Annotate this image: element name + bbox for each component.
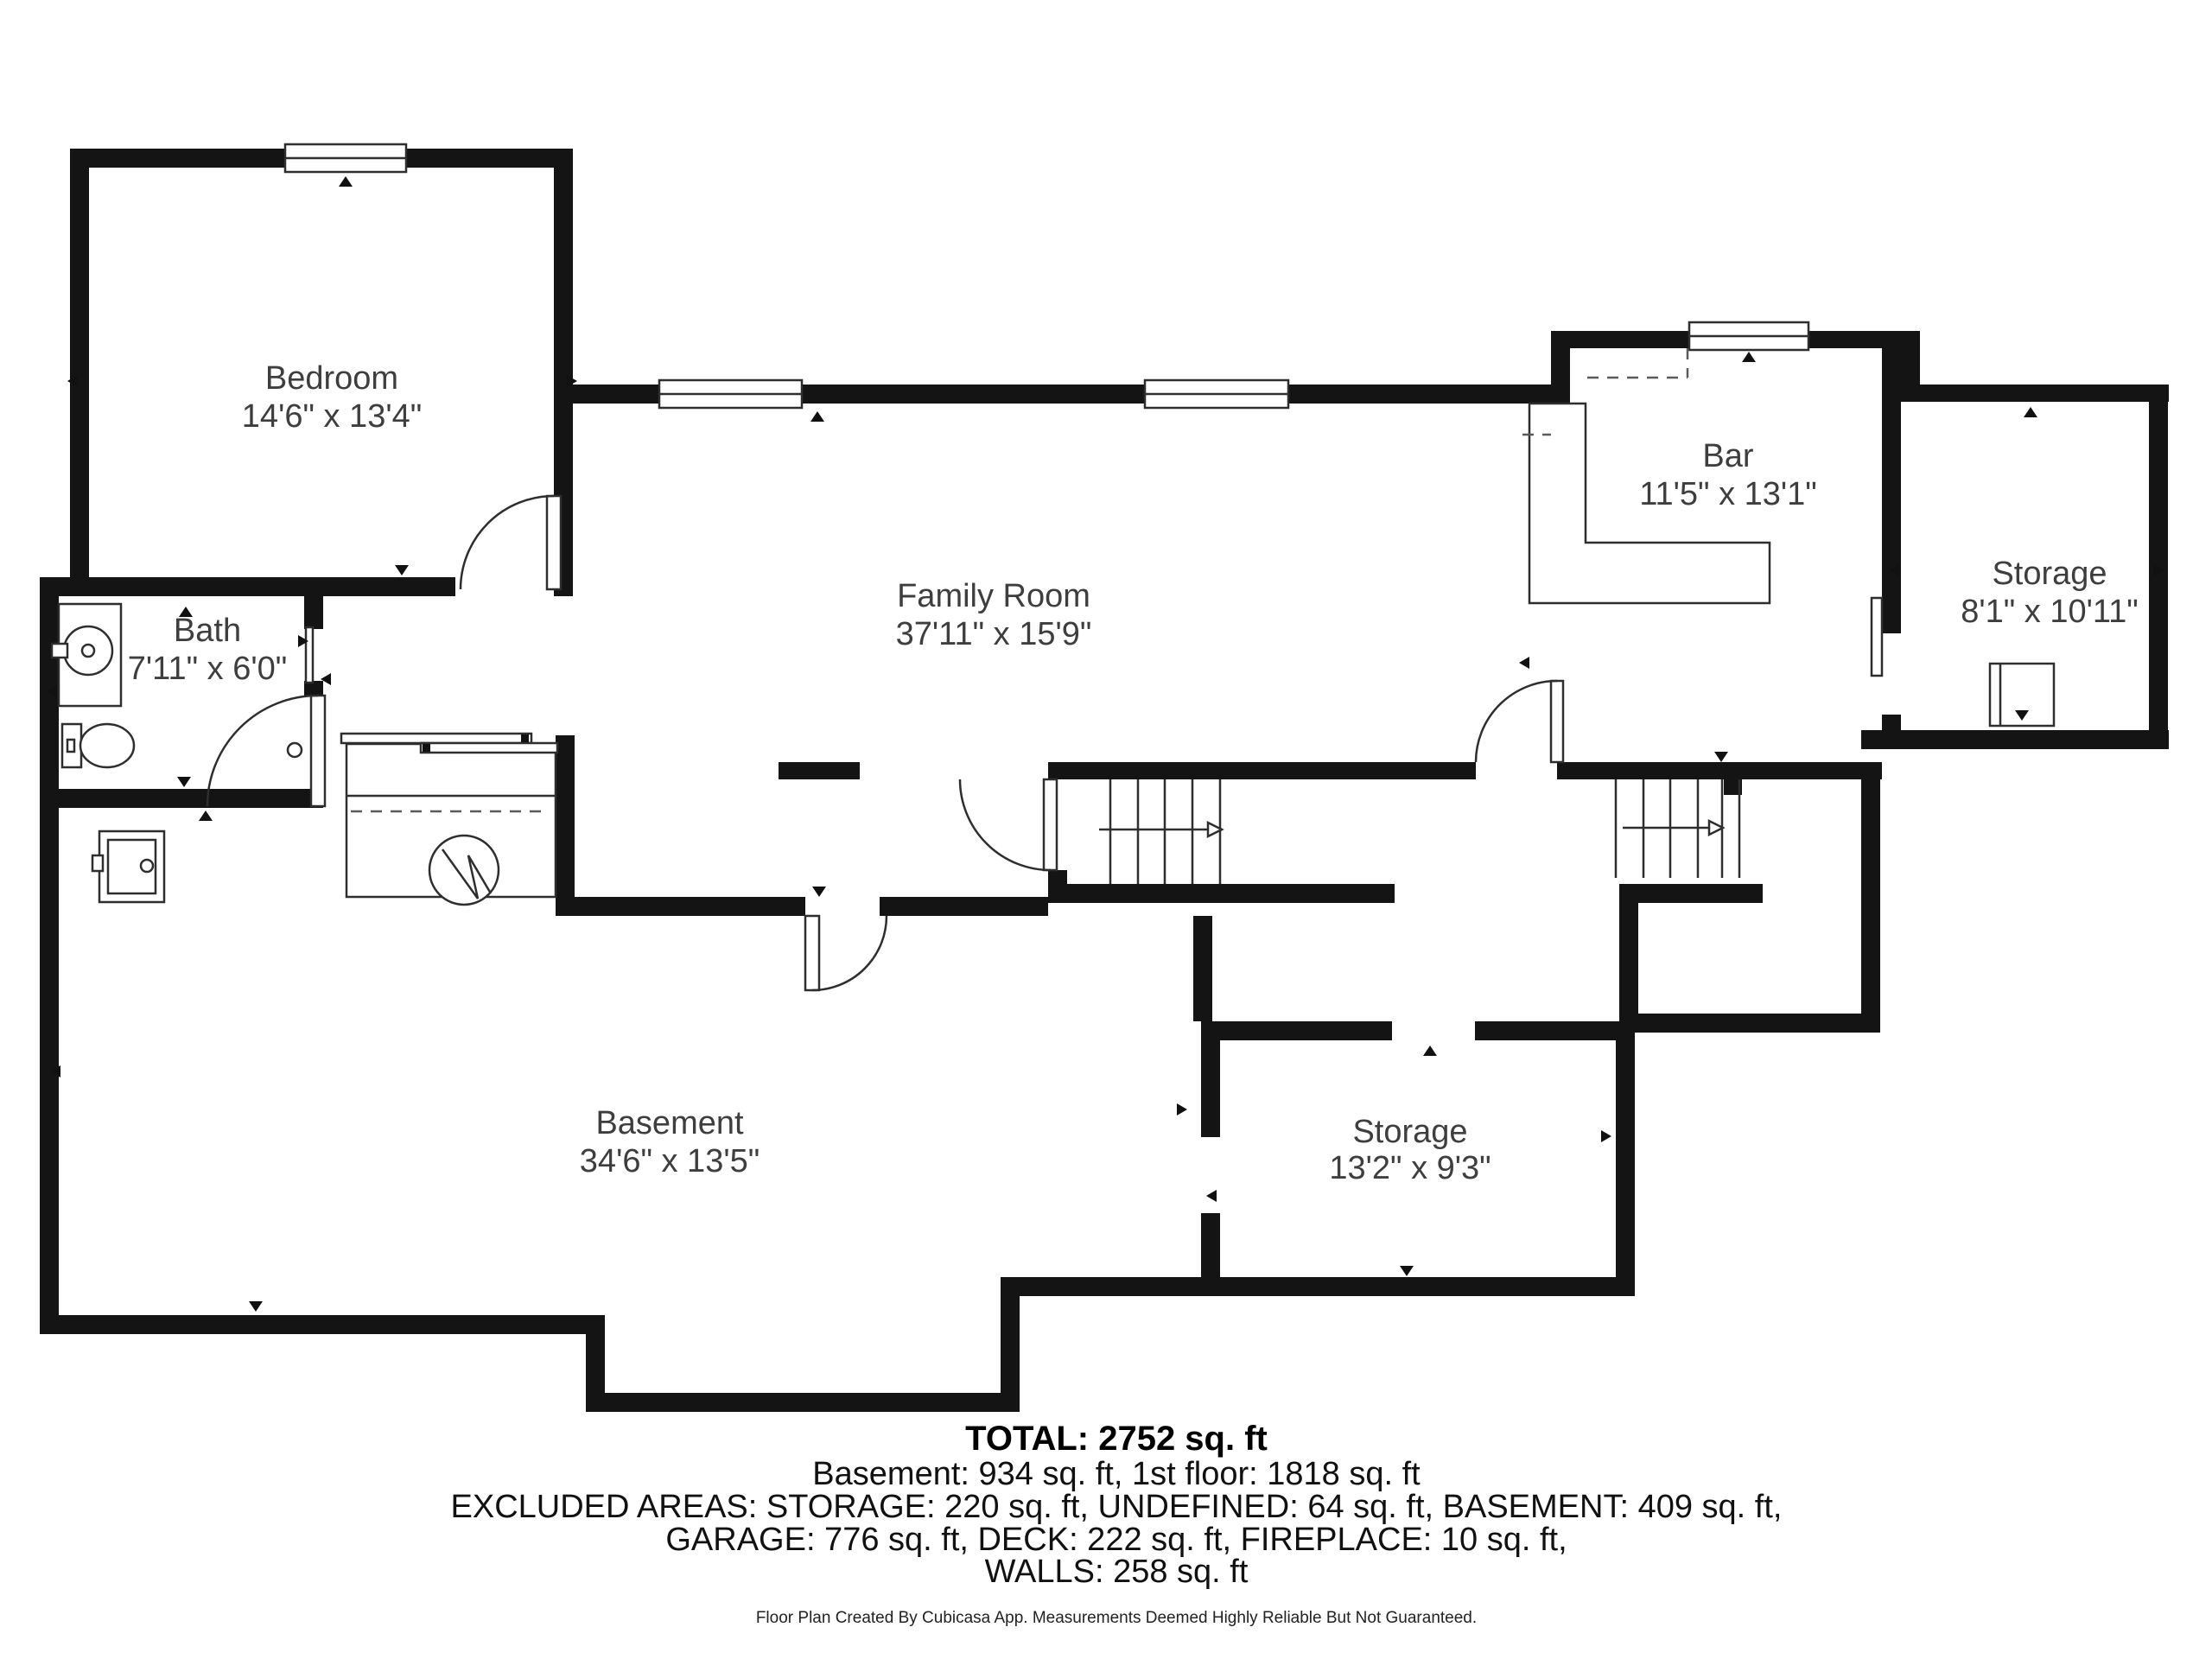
stair-direction-arrow [1623,821,1723,835]
family-room-window-left [659,380,802,408]
staircase-right [1616,779,1739,878]
room-name: Bar [1702,438,1753,474]
family-room-stair-door [960,779,1057,870]
floor-plan-canvas: Bedroom 14'6" x 13'4" Bath 7'11" x 6'0" … [0,0,2212,1659]
room-name: Storage [1352,1114,1467,1150]
room-name: Basement [595,1105,744,1141]
room-dimensions: 11'5" x 13'1" [1639,476,1817,512]
room-label-storage-lower: Storage 13'2" x 9'3" [1329,1114,1491,1186]
room-dimensions: 7'11" x 6'0" [128,651,287,687]
credit-disclaimer: Floor Plan Created By Cubicasa App. Meas… [756,1609,1477,1627]
bedroom-window [285,144,406,172]
bedroom-door [461,496,561,589]
room-name: Storage [1992,556,2107,592]
water-heater [429,836,499,905]
electrical-panel [92,831,164,902]
staircase-left [1099,779,1222,884]
room-name: Bedroom [265,360,398,397]
summary-walls: WALLS: 258 sq. ft [985,1554,1249,1590]
room-dimensions: 34'6" x 13'5" [580,1143,760,1179]
summary-total: TOTAL: 2752 sq. ft [965,1420,1268,1458]
room-label-bath: Bath 7'11" x 6'0" [128,613,287,687]
bathroom-vanity-sink [52,604,121,706]
toilet [62,724,134,767]
room-label-basement: Basement 34'6" x 13'5" [580,1105,760,1179]
floor-plan-page: Bedroom 14'6" x 13'4" Bath 7'11" x 6'0" … [0,0,2212,1659]
summary-excluded-2: GARAGE: 776 sq. ft, DECK: 222 sq. ft, FI… [665,1522,1567,1558]
area-summary: TOTAL: 2752 sq. ft Basement: 934 sq. ft,… [451,1420,1783,1627]
room-label-family-room: Family Room 37'11" x 15'9" [896,578,1092,652]
room-dimensions: 13'2" x 9'3" [1329,1150,1491,1186]
summary-excluded-1: EXCLUDED AREAS: STORAGE: 220 sq. ft, UND… [451,1489,1783,1525]
room-dimensions: 14'6" x 13'4" [242,398,422,435]
basement-door [805,916,887,990]
storage-upper-door [1872,598,1882,676]
room-name: Bath [174,613,241,649]
room-dimensions: 37'11" x 15'9" [896,616,1092,652]
family-room-window-right [1145,380,1288,408]
room-name: Family Room [897,578,1090,614]
bar-window [1689,322,1808,350]
summary-floors: Basement: 934 sq. ft, 1st floor: 1818 sq… [812,1456,1421,1492]
room-label-bedroom: Bedroom 14'6" x 13'4" [242,360,422,435]
room-dimensions: 8'1" x 10'11" [1961,594,2139,630]
stair-direction-arrow [1099,823,1222,836]
room-label-bar: Bar 11'5" x 13'1" [1639,438,1817,512]
family-room-hall-door [1476,681,1563,762]
room-label-storage-upper: Storage 8'1" x 10'11" [1961,556,2139,630]
bath-pocket-door [306,627,313,683]
